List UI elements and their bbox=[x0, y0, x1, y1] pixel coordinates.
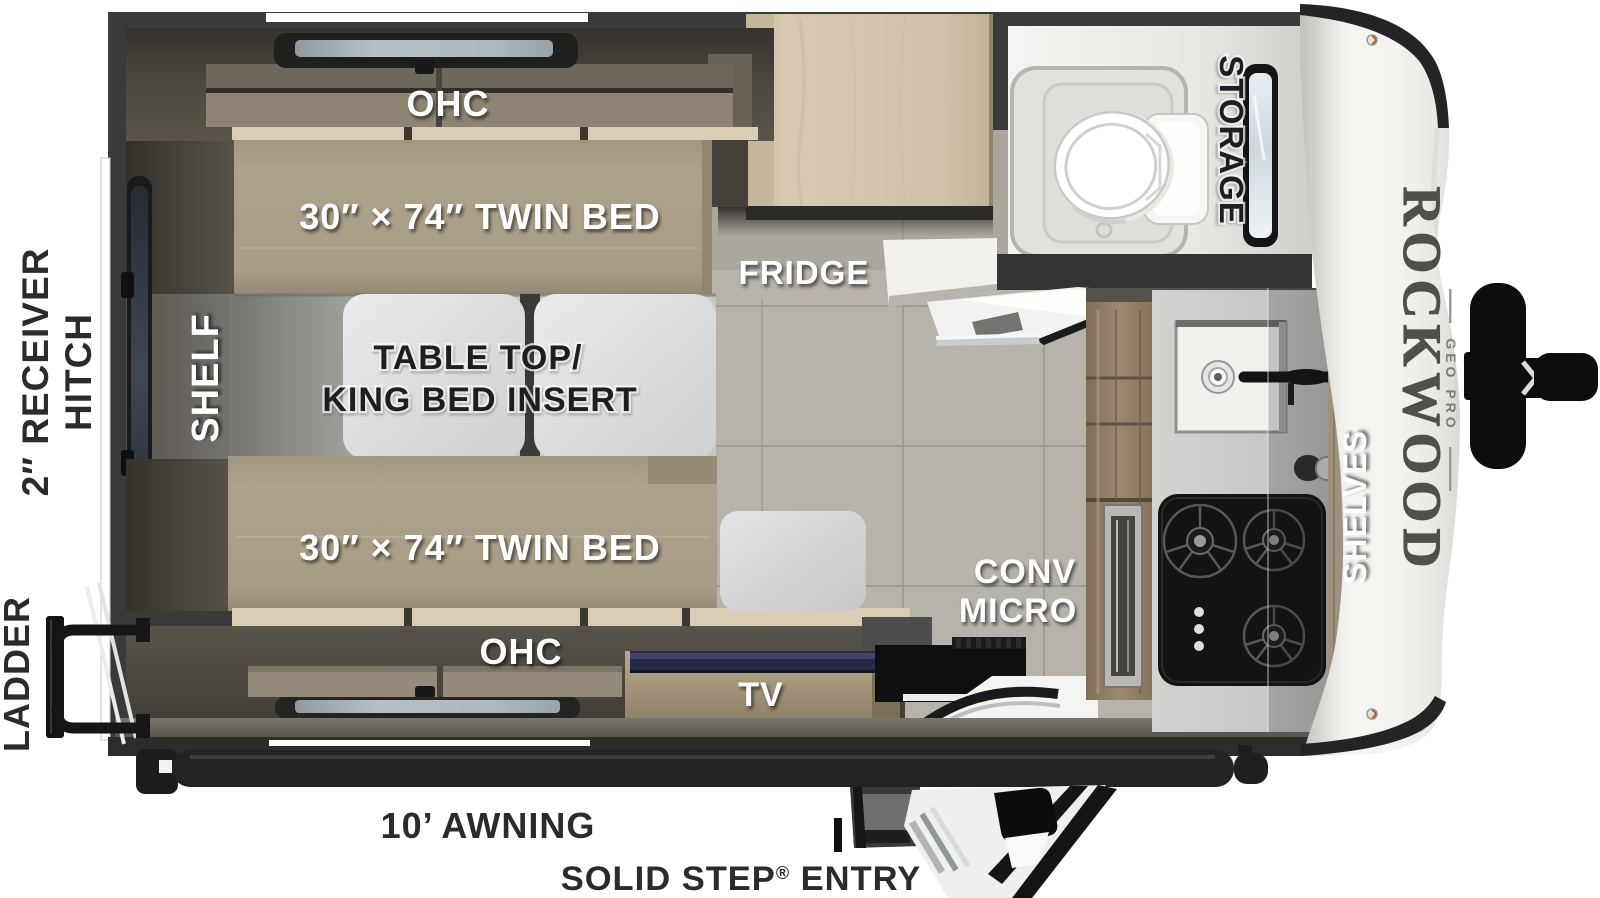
svg-text:ROCKWOOD: ROCKWOOD bbox=[1392, 186, 1452, 573]
svg-text:10’ AWNING: 10’ AWNING bbox=[381, 805, 596, 846]
svg-text:MICRO: MICRO bbox=[959, 592, 1077, 630]
svg-text:SHELF: SHELF bbox=[185, 313, 227, 443]
svg-text:KING BED INSERT: KING BED INSERT bbox=[322, 381, 637, 419]
svg-text:TV: TV bbox=[738, 676, 783, 714]
svg-text:TABLE TOP/: TABLE TOP/ bbox=[374, 339, 583, 377]
svg-text:OHC: OHC bbox=[407, 83, 490, 124]
svg-text:CONV: CONV bbox=[974, 553, 1076, 591]
svg-text:STORAGE: STORAGE bbox=[1213, 55, 1250, 225]
svg-text:SHELVES: SHELVES bbox=[1337, 430, 1373, 584]
svg-text:LADDER: LADDER bbox=[0, 596, 37, 752]
svg-text:30″ × 74″ TWIN BED: 30″ × 74″ TWIN BED bbox=[299, 196, 661, 237]
svg-text:30″ × 74″ TWIN BED: 30″ × 74″ TWIN BED bbox=[299, 527, 661, 568]
svg-text:2″ RECEIVER: 2″ RECEIVER bbox=[15, 248, 56, 497]
svg-text:OHC: OHC bbox=[480, 631, 563, 672]
svg-text:SOLID STEP® ENTRY: SOLID STEP® ENTRY bbox=[561, 860, 922, 898]
svg-text:HITCH: HITCH bbox=[58, 313, 99, 431]
svg-text:GEO PRO: GEO PRO bbox=[1443, 338, 1459, 431]
svg-text:FRIDGE: FRIDGE bbox=[739, 254, 870, 291]
